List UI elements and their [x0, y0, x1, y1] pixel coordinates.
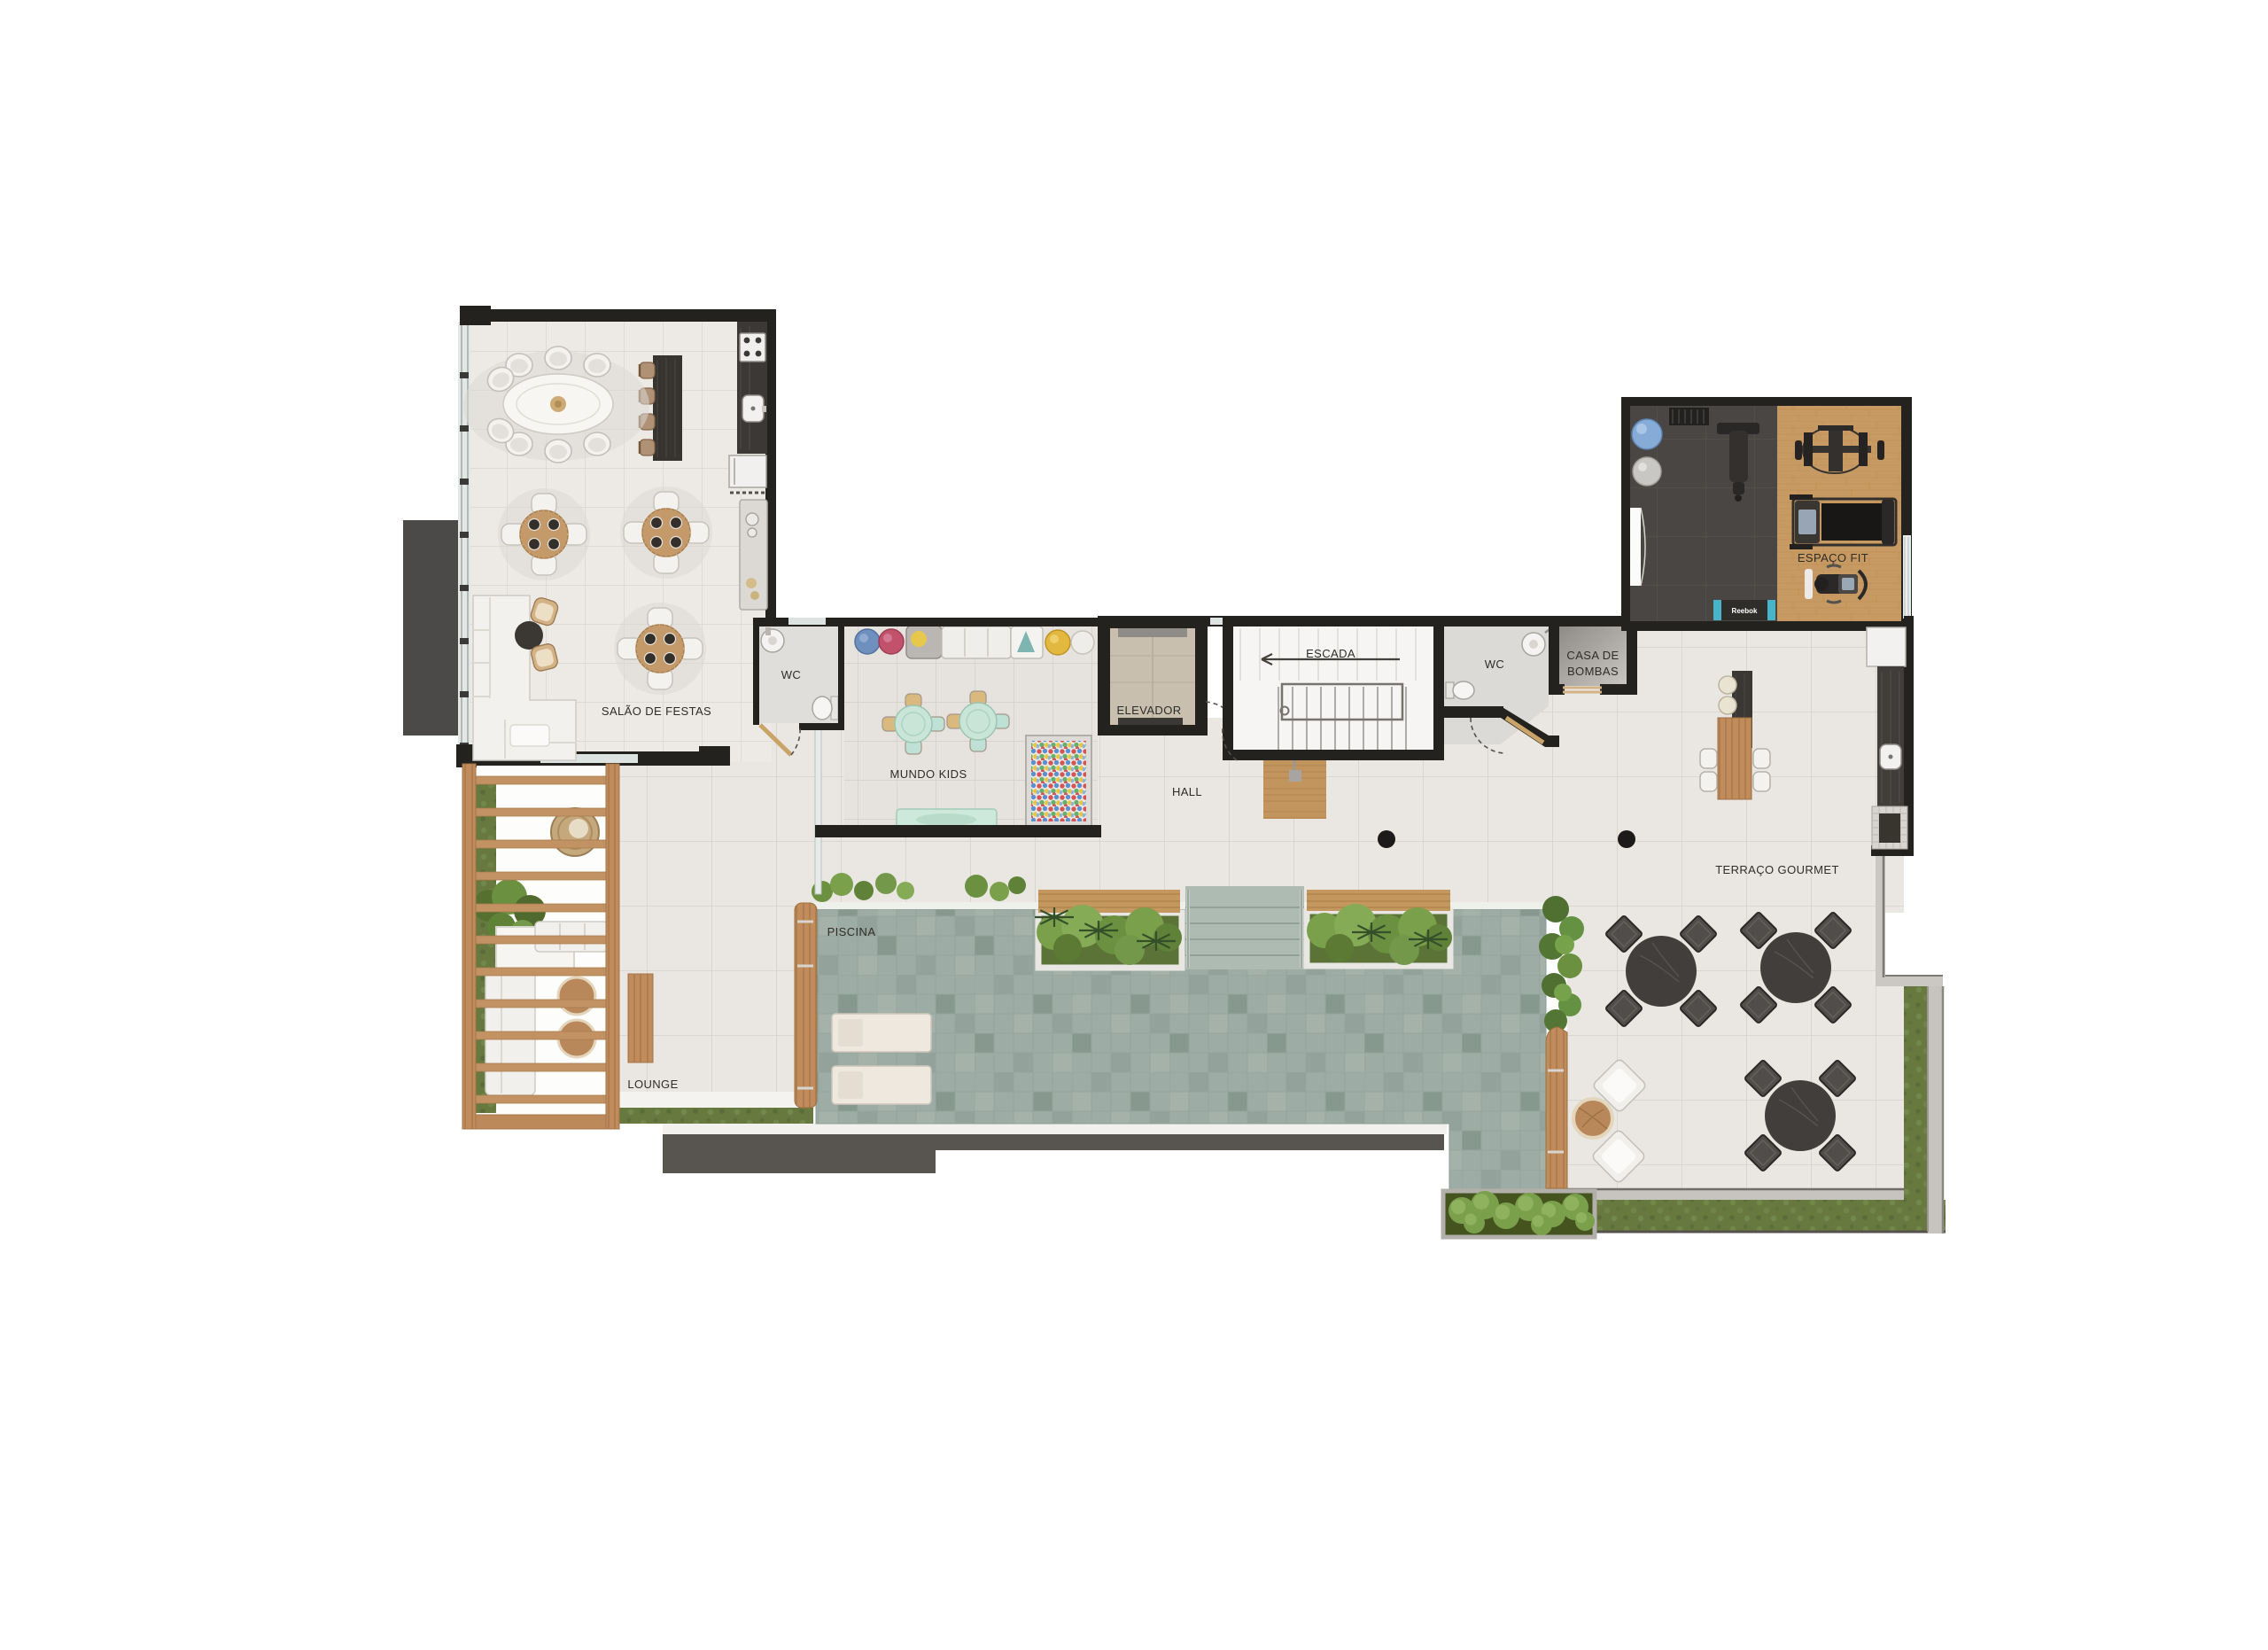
svg-text:CASA DE: CASA DE	[1566, 649, 1619, 662]
svg-text:HALL: HALL	[1172, 785, 1202, 798]
svg-text:Reebok: Reebok	[1732, 607, 1758, 615]
svg-text:ESPAÇO FIT: ESPAÇO FIT	[1798, 551, 1868, 564]
svg-text:TERRAÇO GOURMET: TERRAÇO GOURMET	[1715, 863, 1839, 876]
svg-text:ELEVADOR: ELEVADOR	[1116, 704, 1181, 717]
svg-text:BOMBAS: BOMBAS	[1567, 665, 1619, 678]
svg-text:LOUNGE: LOUNGE	[627, 1078, 678, 1091]
svg-text:ESCADA: ESCADA	[1306, 647, 1355, 660]
svg-text:MUNDO KIDS: MUNDO KIDS	[889, 767, 967, 781]
svg-text:WC: WC	[1485, 658, 1504, 671]
svg-text:PISCINA: PISCINA	[827, 925, 876, 938]
svg-text:WC: WC	[781, 668, 801, 681]
svg-text:SALÃO DE FESTAS: SALÃO DE FESTAS	[602, 704, 711, 718]
